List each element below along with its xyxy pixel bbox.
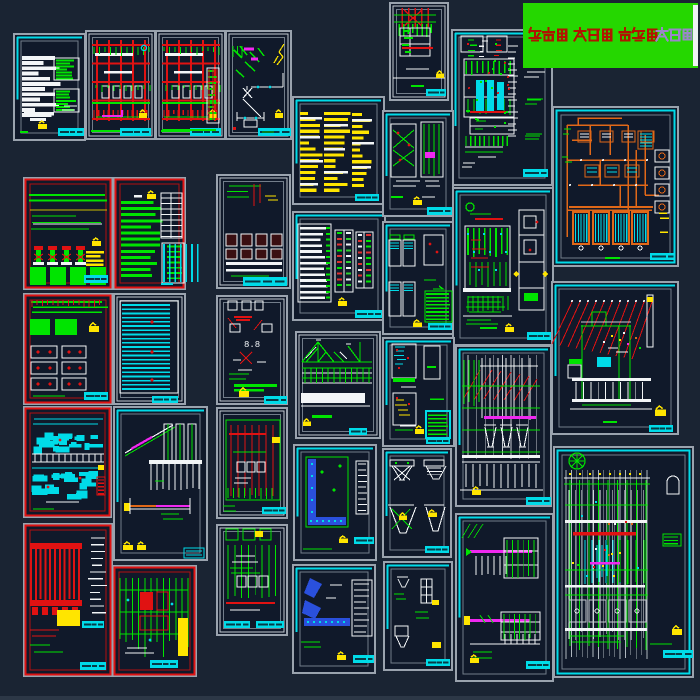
svg-text:8.8: 8.8: [244, 340, 260, 350]
